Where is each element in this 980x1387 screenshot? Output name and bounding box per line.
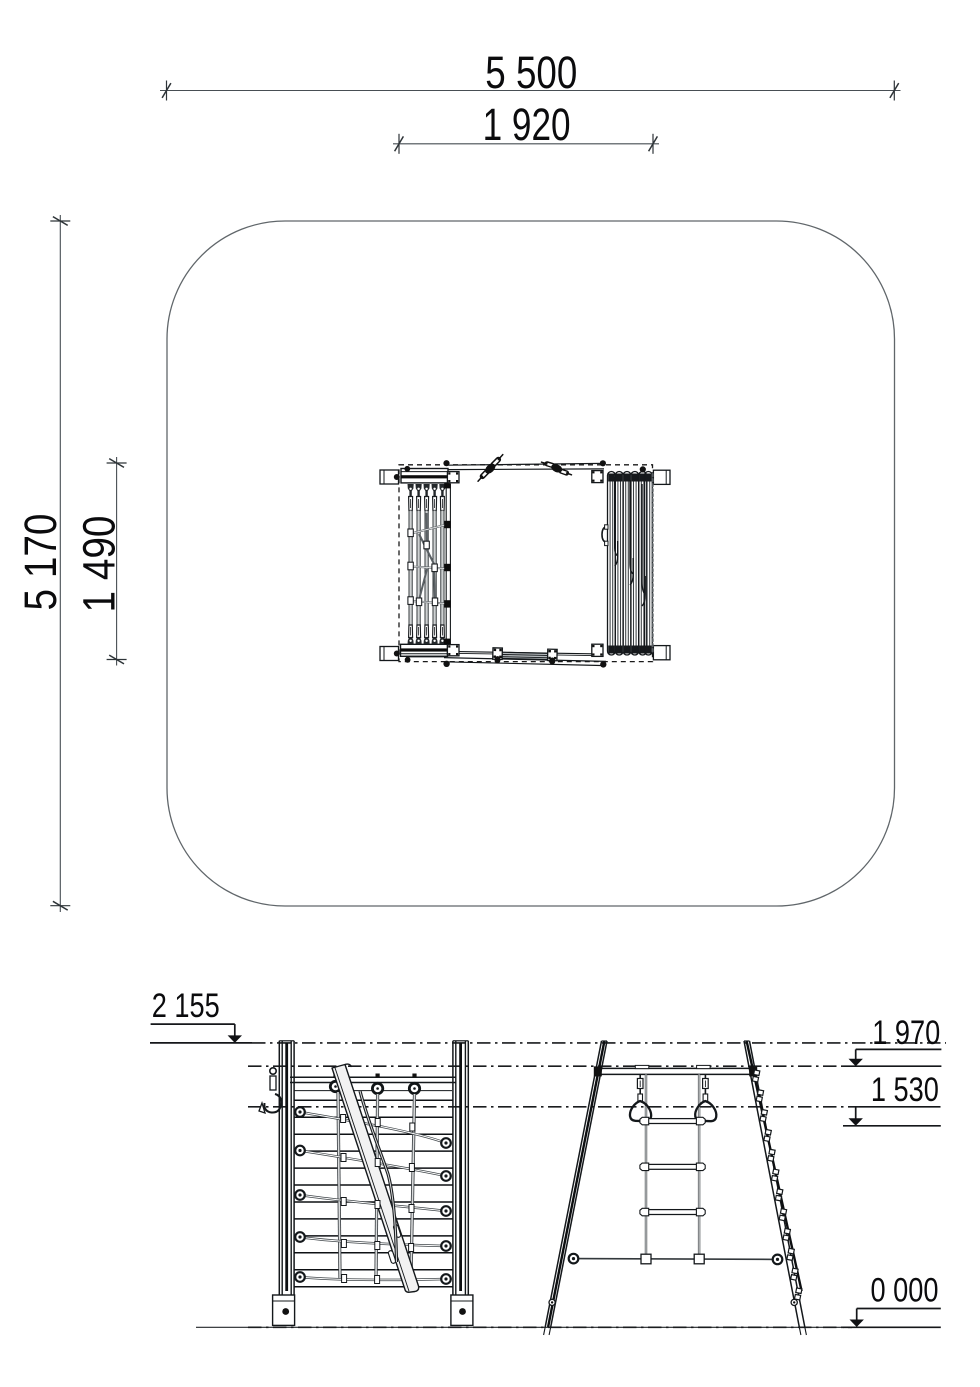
svg-text:1 490: 1 490 xyxy=(74,516,125,613)
svg-text:1 920: 1 920 xyxy=(483,99,571,150)
svg-text:1 530: 1 530 xyxy=(871,1071,939,1109)
svg-text:0 000: 0 000 xyxy=(871,1272,939,1310)
svg-text:2 155: 2 155 xyxy=(152,987,220,1025)
svg-text:1 970: 1 970 xyxy=(872,1014,940,1052)
svg-text:5 500: 5 500 xyxy=(485,47,577,98)
svg-text:5 170: 5 170 xyxy=(15,514,66,611)
